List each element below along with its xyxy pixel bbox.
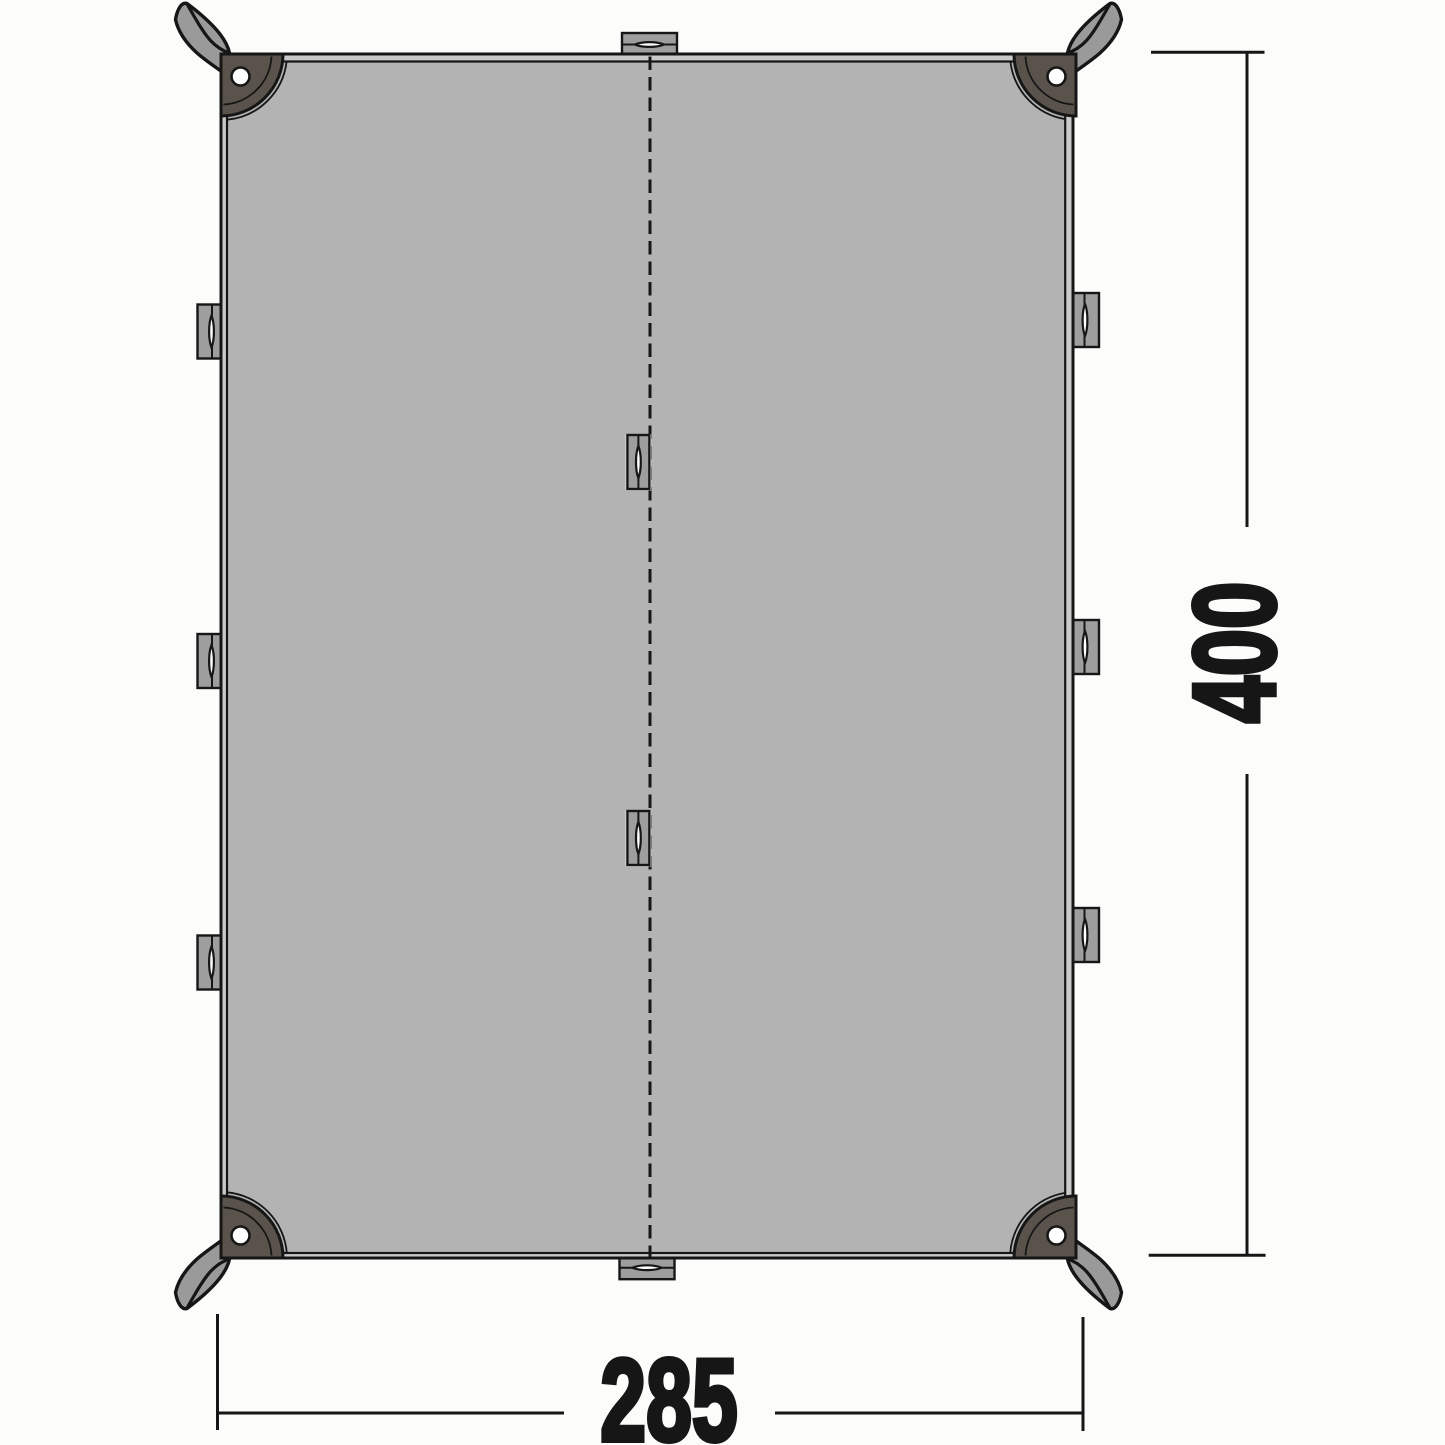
svg-text:285: 285 <box>600 1335 737 1445</box>
svg-text:400: 400 <box>1171 582 1300 723</box>
